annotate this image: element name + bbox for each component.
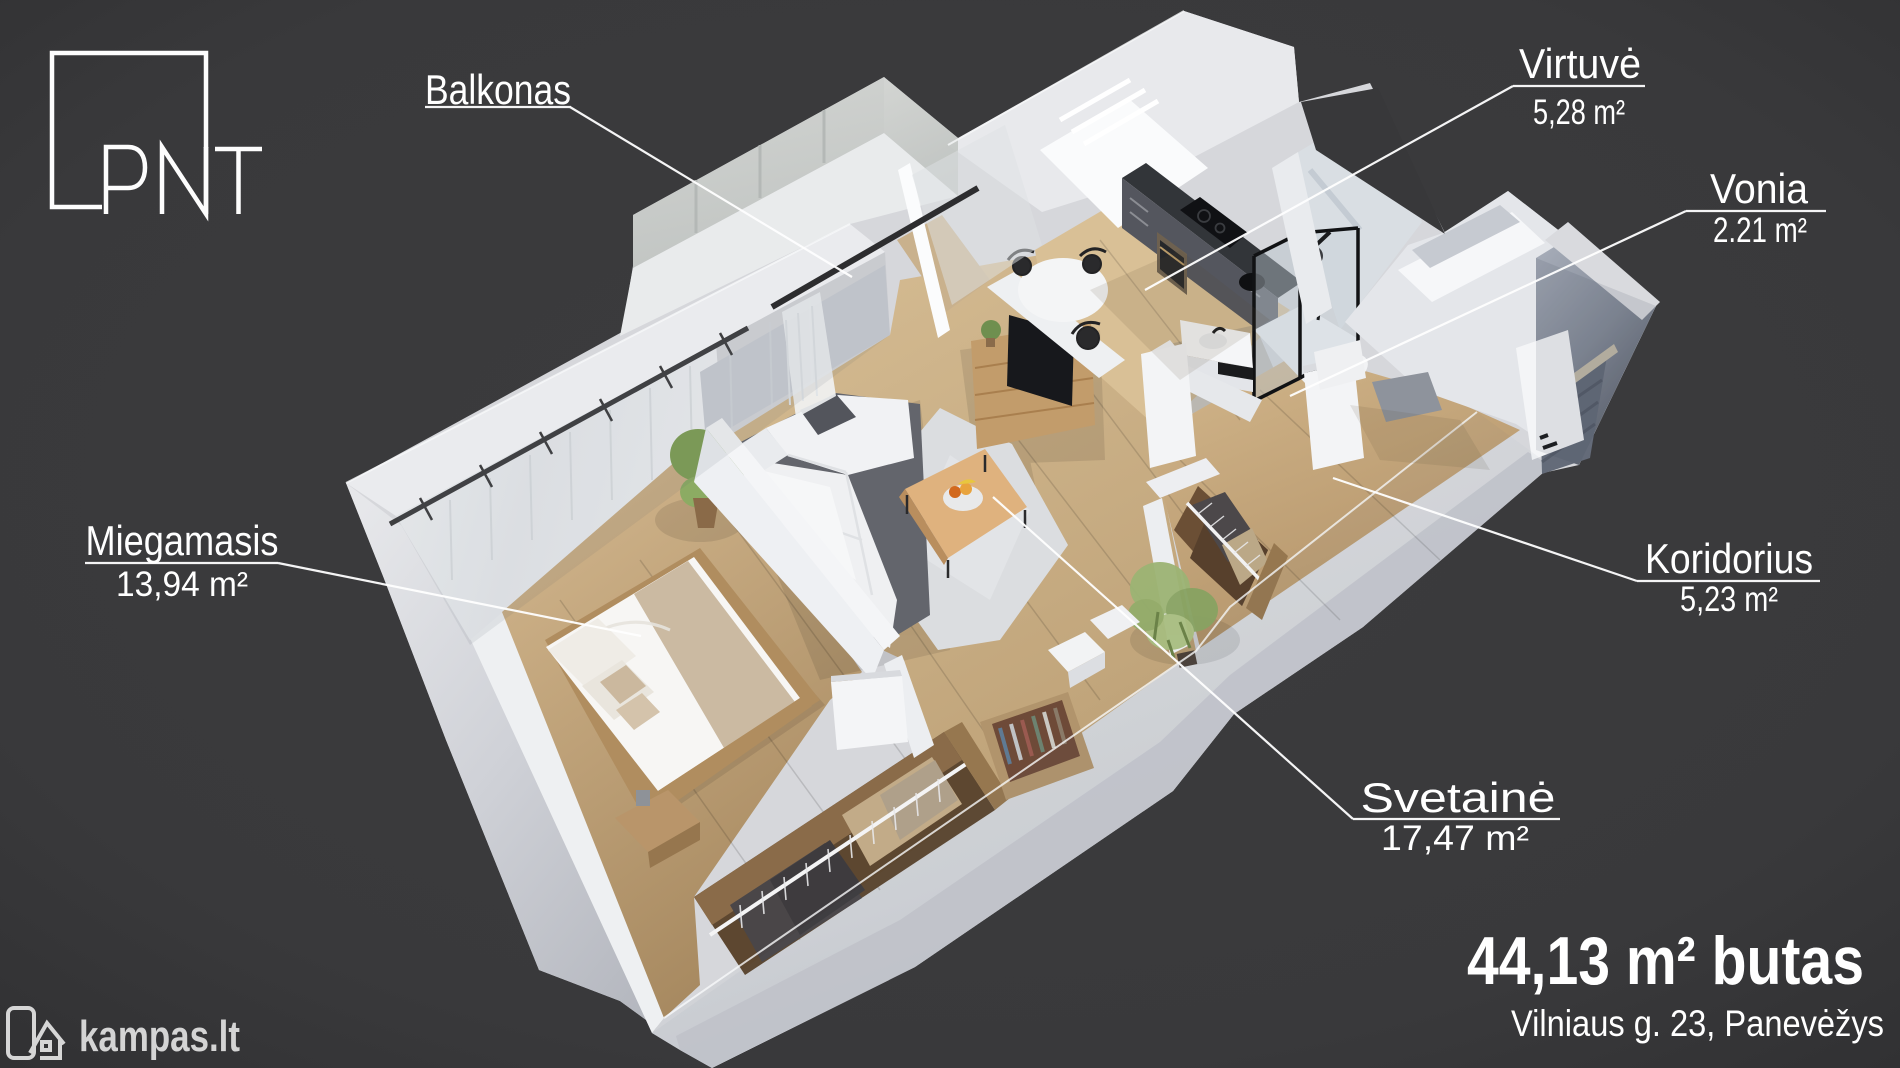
svg-text:Vilniaus g. 23, Panevėžys: Vilniaus g. 23, Panevėžys: [1511, 1003, 1884, 1044]
svg-text:Svetainė: Svetainė: [1361, 774, 1556, 821]
svg-text:Balkonas: Balkonas: [425, 66, 571, 113]
svg-text:44,13 m² butas: 44,13 m² butas: [1467, 923, 1864, 999]
svg-text:Koridorius: Koridorius: [1645, 535, 1813, 582]
svg-text:Miegamasis: Miegamasis: [86, 517, 279, 564]
svg-text:Virtuvė: Virtuvė: [1519, 40, 1641, 87]
svg-text:kampas.lt: kampas.lt: [79, 1012, 240, 1061]
svg-text:5,28 m²: 5,28 m²: [1533, 93, 1625, 132]
svg-text:2.21 m²: 2.21 m²: [1713, 211, 1807, 250]
svg-text:Vonia: Vonia: [1710, 165, 1809, 212]
svg-text:17,47 m²: 17,47 m²: [1381, 819, 1529, 858]
svg-text:13,94 m²: 13,94 m²: [116, 565, 248, 604]
svg-text:5,23 m²: 5,23 m²: [1680, 580, 1778, 619]
